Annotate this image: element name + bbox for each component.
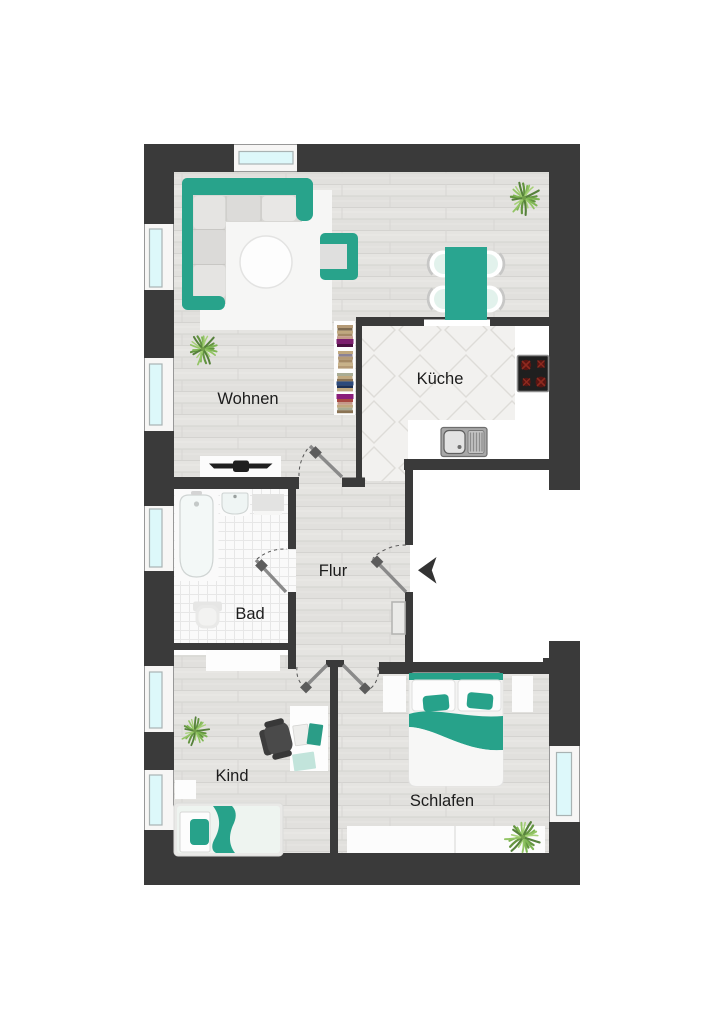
svg-text:Bad: Bad	[235, 605, 264, 623]
svg-text:Kind: Kind	[215, 767, 248, 785]
svg-text:Wohnen: Wohnen	[217, 390, 278, 408]
svg-text:Flur: Flur	[319, 562, 348, 580]
svg-text:Küche: Küche	[417, 370, 464, 388]
svg-text:Schlafen: Schlafen	[410, 792, 474, 810]
